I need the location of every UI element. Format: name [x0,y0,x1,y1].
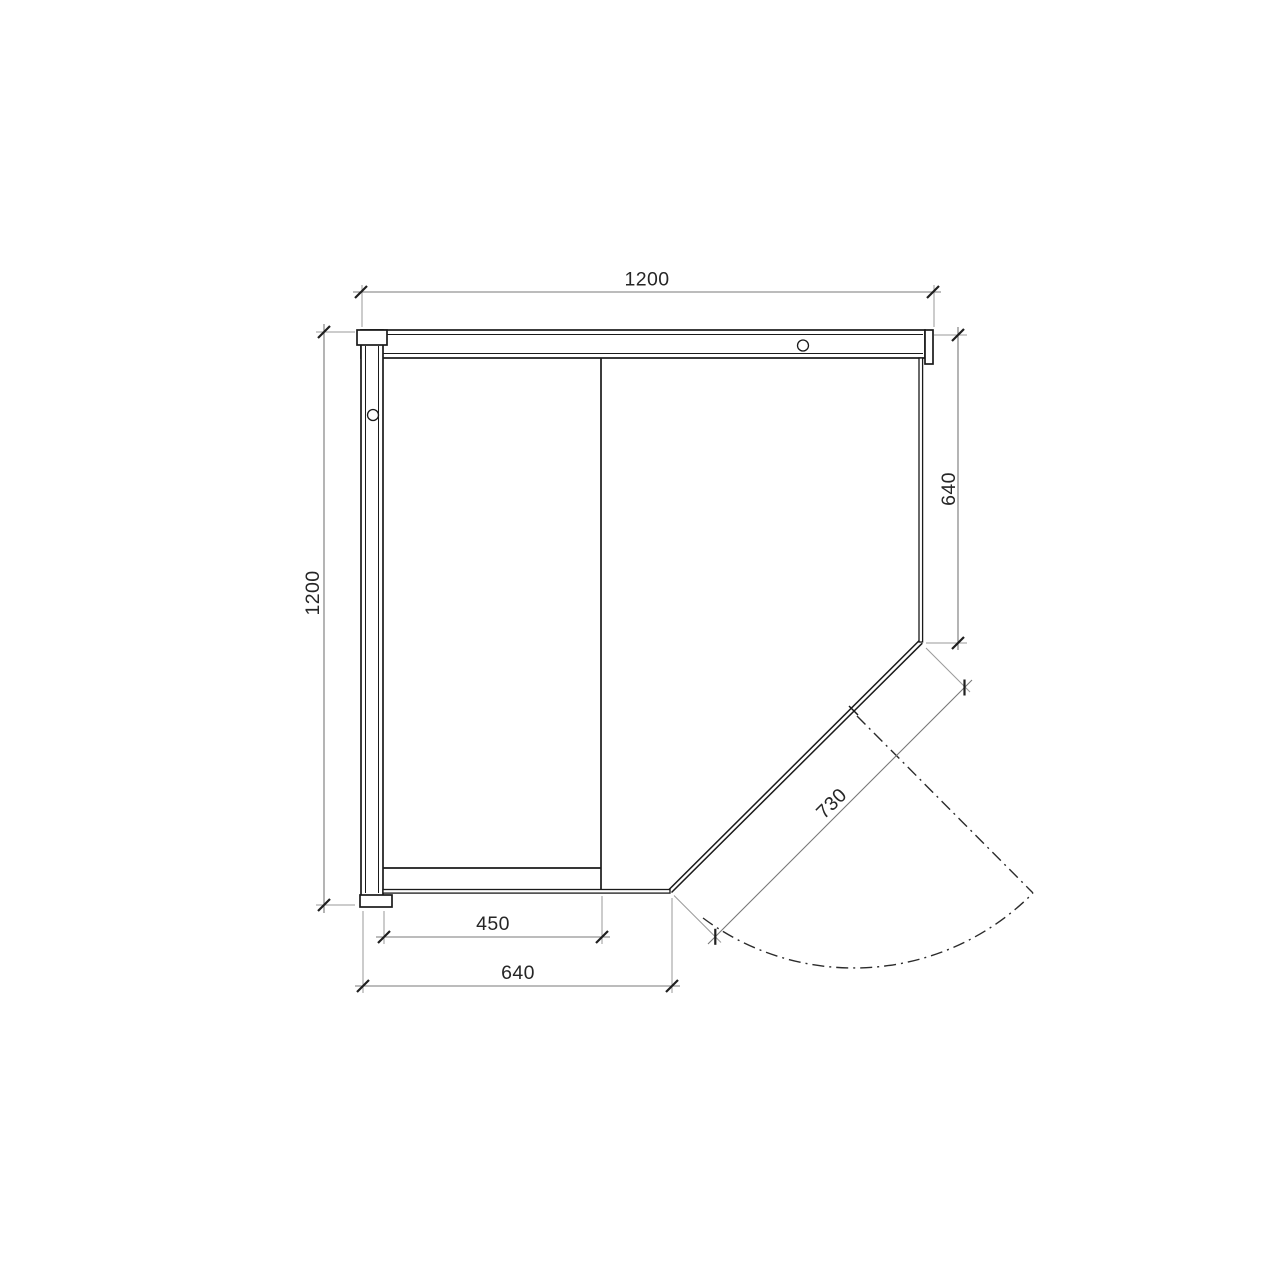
left-panel-hole [368,410,379,421]
dim-overall-depth: 1200 [302,324,355,913]
bottom-side-panel [383,890,670,894]
top-panel-hole [798,340,809,351]
dim-overall-width: 1200 [353,269,941,328]
door-open-position-line [857,716,1033,893]
dim-right-panel-label: 640 [938,472,960,506]
corner-door-line-inner [669,641,920,890]
right-side-panel [919,358,923,642]
dim-door-diagonal: 730 [674,648,972,945]
dim-overall-width-label: 1200 [625,269,670,291]
door-swing-arc [703,893,1033,968]
dim-inner-bay-label: 450 [476,913,510,935]
dim-door-diagonal-ext-lower [674,896,721,943]
dim-bottom-panel: 640 [355,898,680,993]
door-hinge-joint-tick [849,706,858,715]
dim-bottom-panel-label: 640 [501,962,535,984]
dim-door-diagonal-label: 730 [812,784,851,823]
top-wall-end-cap [925,330,933,364]
diagram-canvas: 1200 1200 640 450 [0,0,1280,1280]
floor-plan-svg: 1200 1200 640 450 [0,0,1280,1280]
door-swing [703,716,1033,968]
left-wall-top-cap [357,330,387,345]
dimensions: 1200 1200 640 450 [302,269,972,994]
dim-inner-bay: 450 [376,896,610,944]
dim-right-panel: 640 [926,327,967,650]
dim-overall-depth-label: 1200 [302,571,324,616]
cabin-structure [357,330,933,907]
left-wall-bottom-cap [360,895,392,907]
